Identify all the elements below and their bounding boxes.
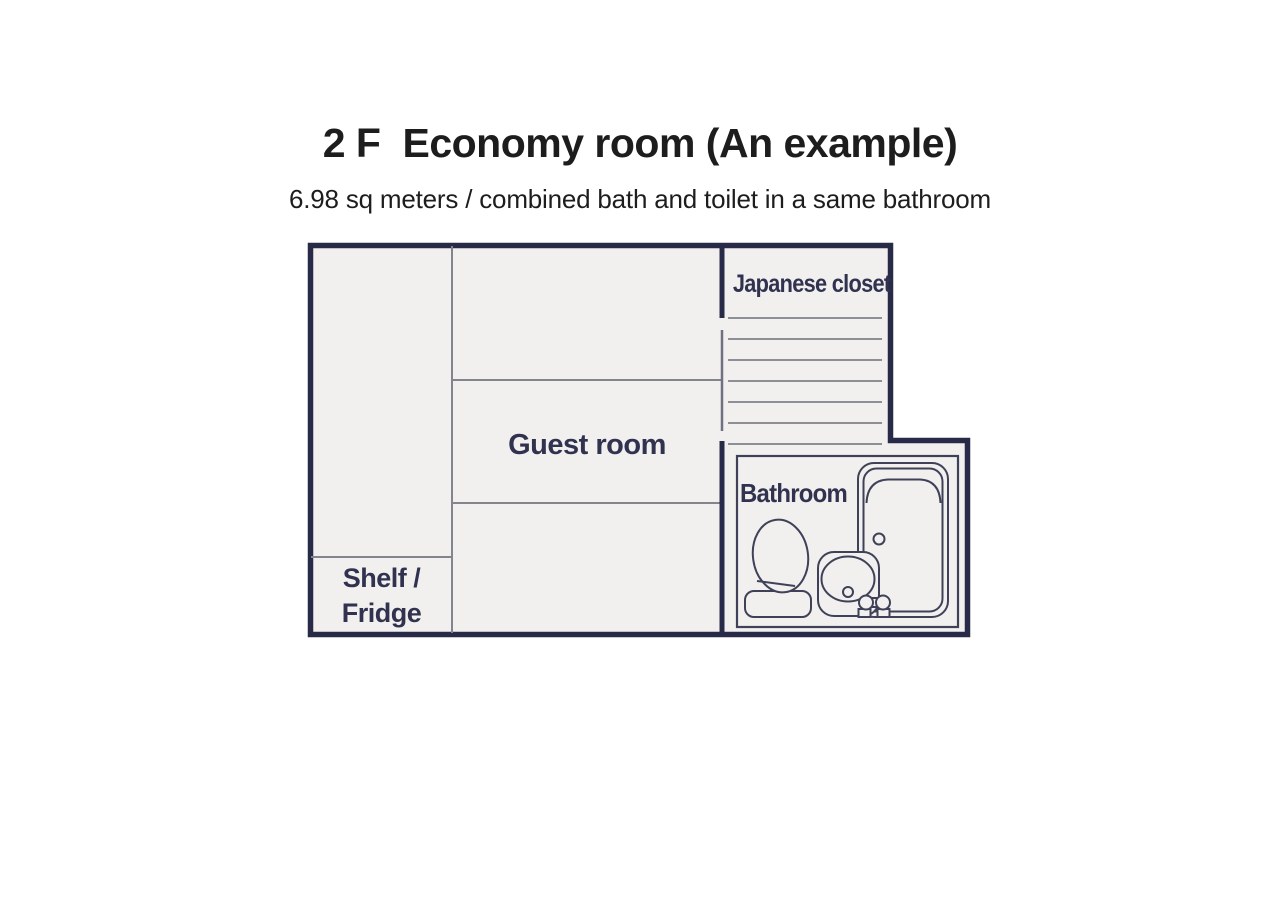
shelf-fridge-label-line1: Shelf /: [311, 561, 452, 596]
guest-room-label: Guest room: [452, 429, 722, 462]
page: 2 FEconomy room (An example) 6.98 sq met…: [0, 0, 1280, 900]
floor-plan: Japanese closet Guest room Bathroom Shel…: [0, 0, 1280, 900]
shelf-fridge-label-line2: Fridge: [311, 596, 452, 631]
shelf-fridge-label: Shelf / Fridge: [311, 561, 452, 631]
japanese-closet-label: Japanese closet: [733, 270, 878, 299]
bathroom-label: Bathroom: [740, 478, 846, 509]
